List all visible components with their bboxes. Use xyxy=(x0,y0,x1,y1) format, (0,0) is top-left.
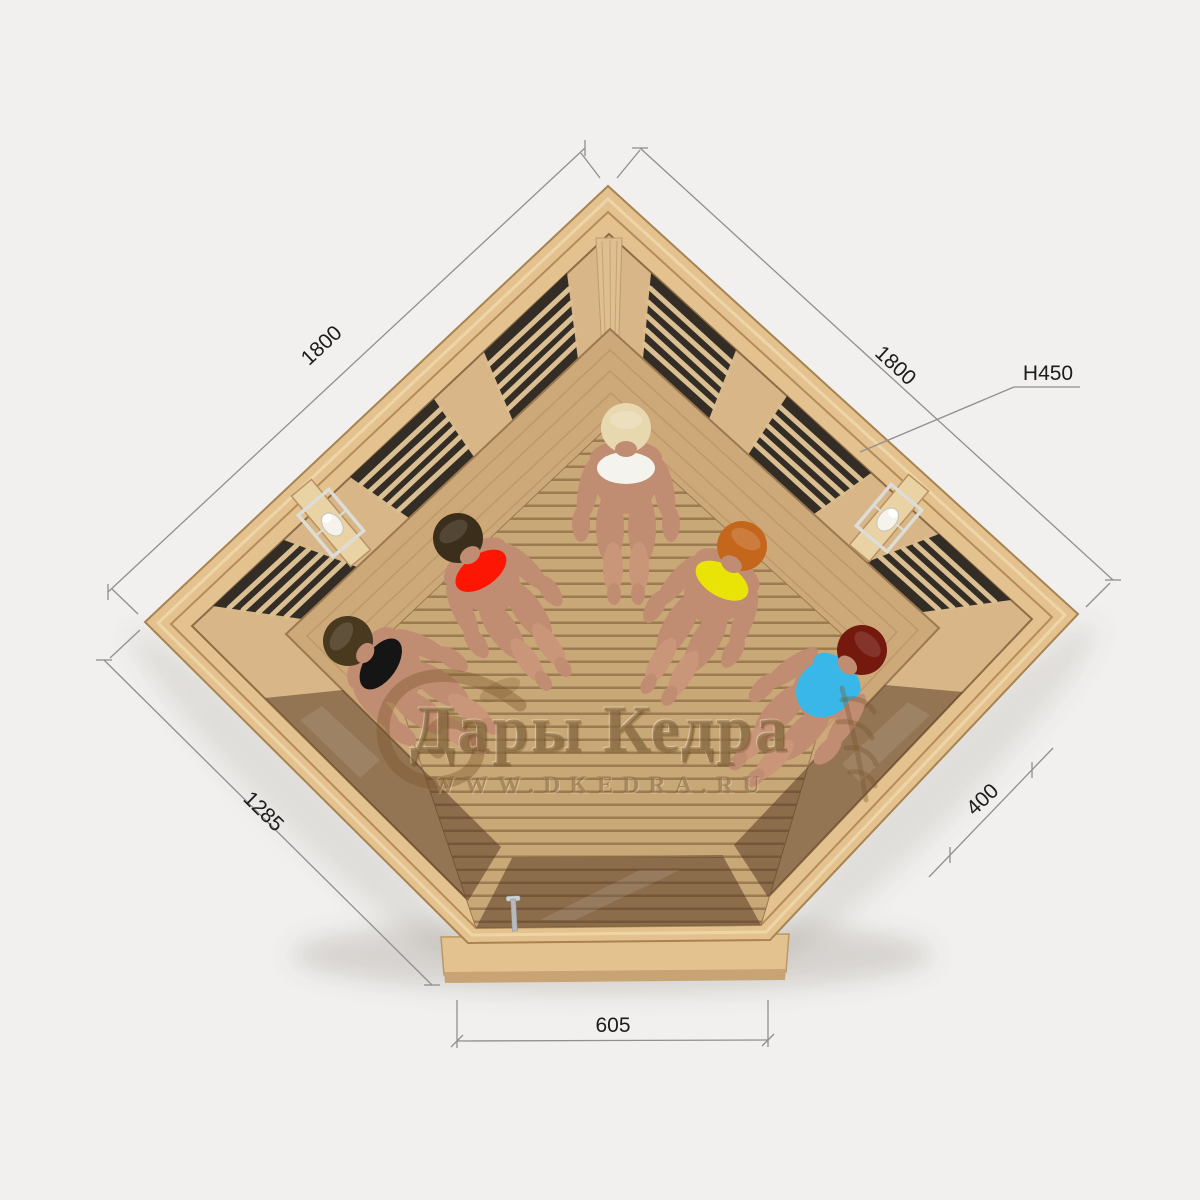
scene: 1800 1800 H450 1285 400 605 Дары Кедра W… xyxy=(0,0,1200,1200)
dimension-label-door: 605 xyxy=(595,1014,630,1038)
dimension-label-height: H450 xyxy=(1023,362,1073,386)
glass-door xyxy=(476,856,761,928)
